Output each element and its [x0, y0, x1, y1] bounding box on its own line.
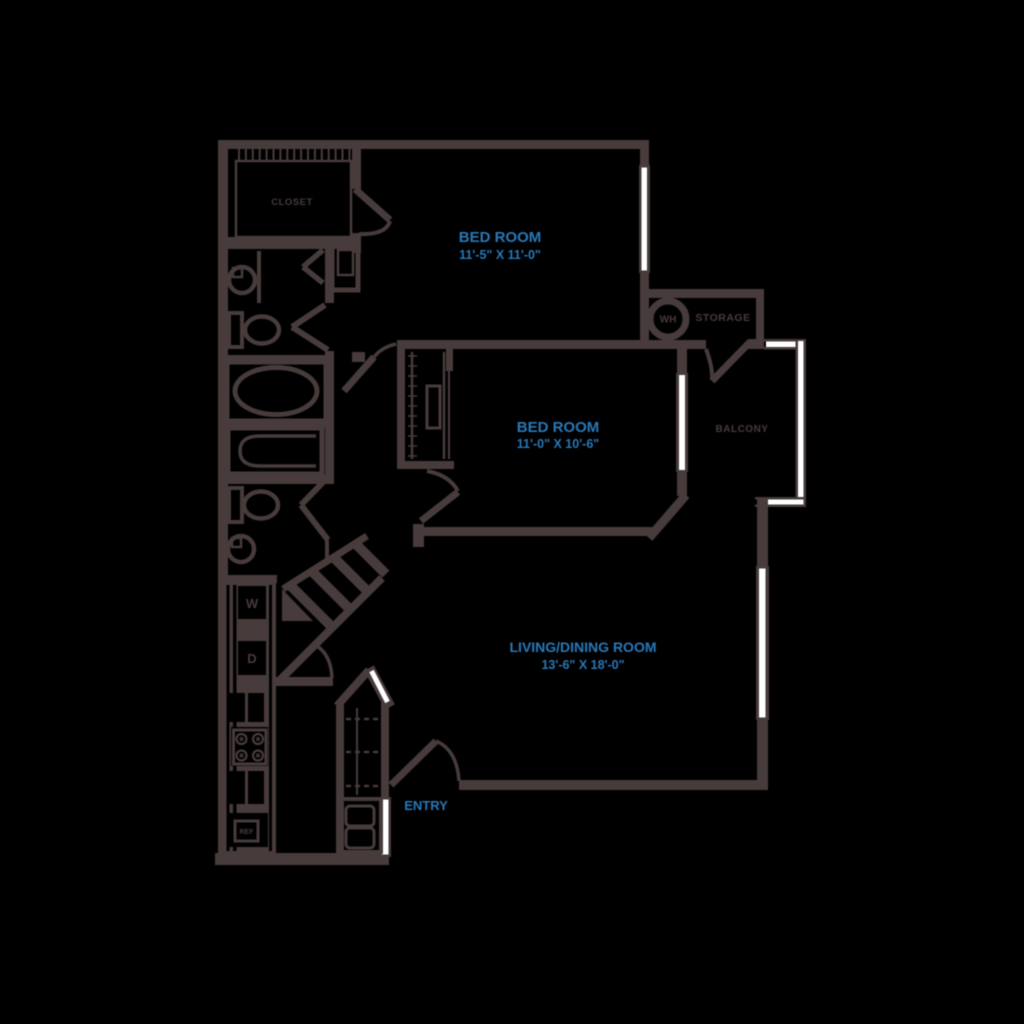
svg-text:BED ROOM: BED ROOM [517, 419, 600, 436]
svg-text:WH: WH [660, 315, 677, 326]
svg-text:W: W [246, 596, 259, 611]
svg-text:LIVING/DINING ROOM: LIVING/DINING ROOM [510, 639, 657, 655]
svg-text:ENTRY: ENTRY [404, 798, 448, 813]
svg-text:REF: REF [240, 829, 255, 836]
svg-text:13'-6" X 18'-0": 13'-6" X 18'-0" [541, 658, 624, 672]
svg-text:11'-0" X 10'-6": 11'-0" X 10'-6" [517, 437, 600, 451]
svg-text:BALCONY: BALCONY [716, 424, 769, 435]
svg-text:BED ROOM: BED ROOM [459, 229, 542, 246]
svg-text:CLOSET: CLOSET [271, 197, 313, 208]
svg-text:STORAGE: STORAGE [695, 312, 750, 324]
svg-text:11'-5" X 11'-0": 11'-5" X 11'-0" [459, 248, 541, 262]
svg-text:D: D [247, 651, 256, 666]
